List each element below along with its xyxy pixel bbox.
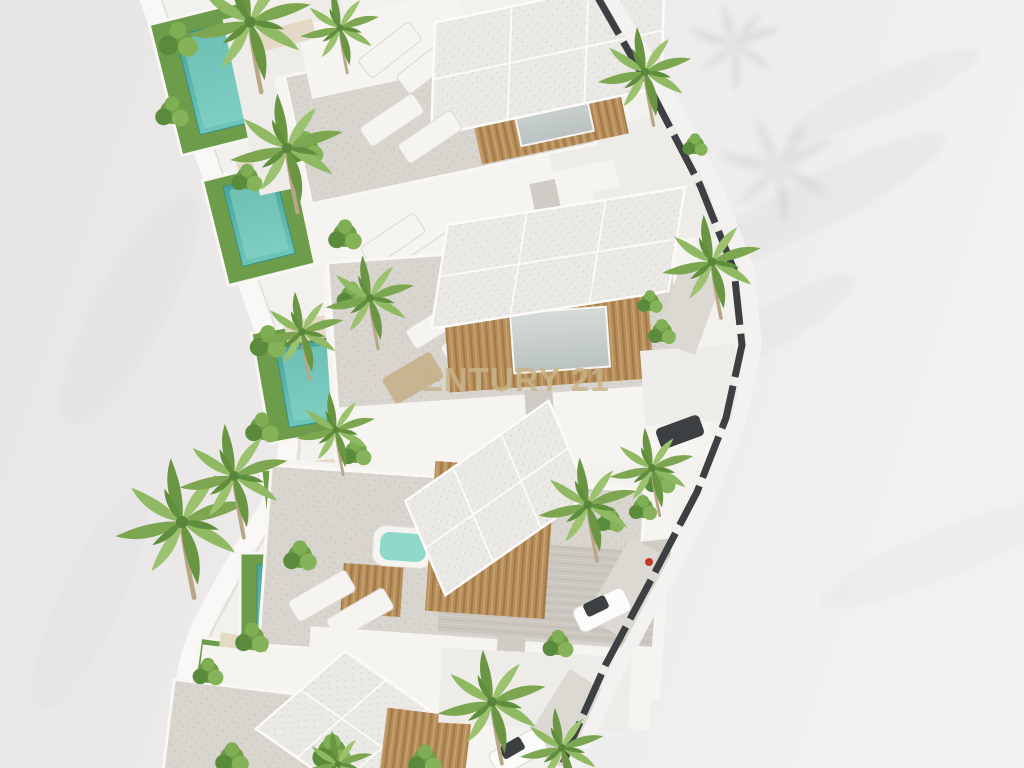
- villa2-window: [510, 307, 610, 374]
- villa-render: [0, 0, 1024, 768]
- red-planter: [645, 558, 653, 566]
- render-canvas: CENTURY 21: [0, 0, 1024, 768]
